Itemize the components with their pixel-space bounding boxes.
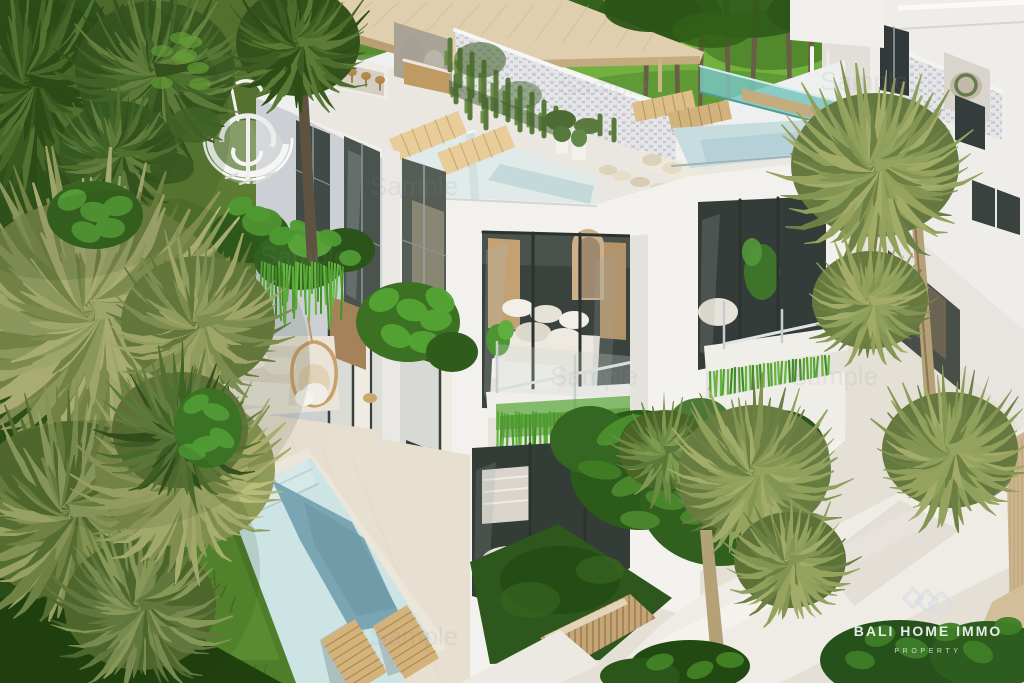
svg-text:Sample: Sample <box>260 241 348 271</box>
svg-text:Sample: Sample <box>820 66 908 96</box>
svg-text:Sample: Sample <box>370 171 458 201</box>
svg-text:PROPERTY: PROPERTY <box>894 648 961 655</box>
svg-text:Sample: Sample <box>790 361 878 391</box>
svg-text:BALI HOME IMMO: BALI HOME IMMO <box>854 623 1003 639</box>
svg-text:Sample: Sample <box>370 621 458 651</box>
svg-text:Sample: Sample <box>560 71 648 101</box>
svg-text:Sample: Sample <box>550 361 638 391</box>
